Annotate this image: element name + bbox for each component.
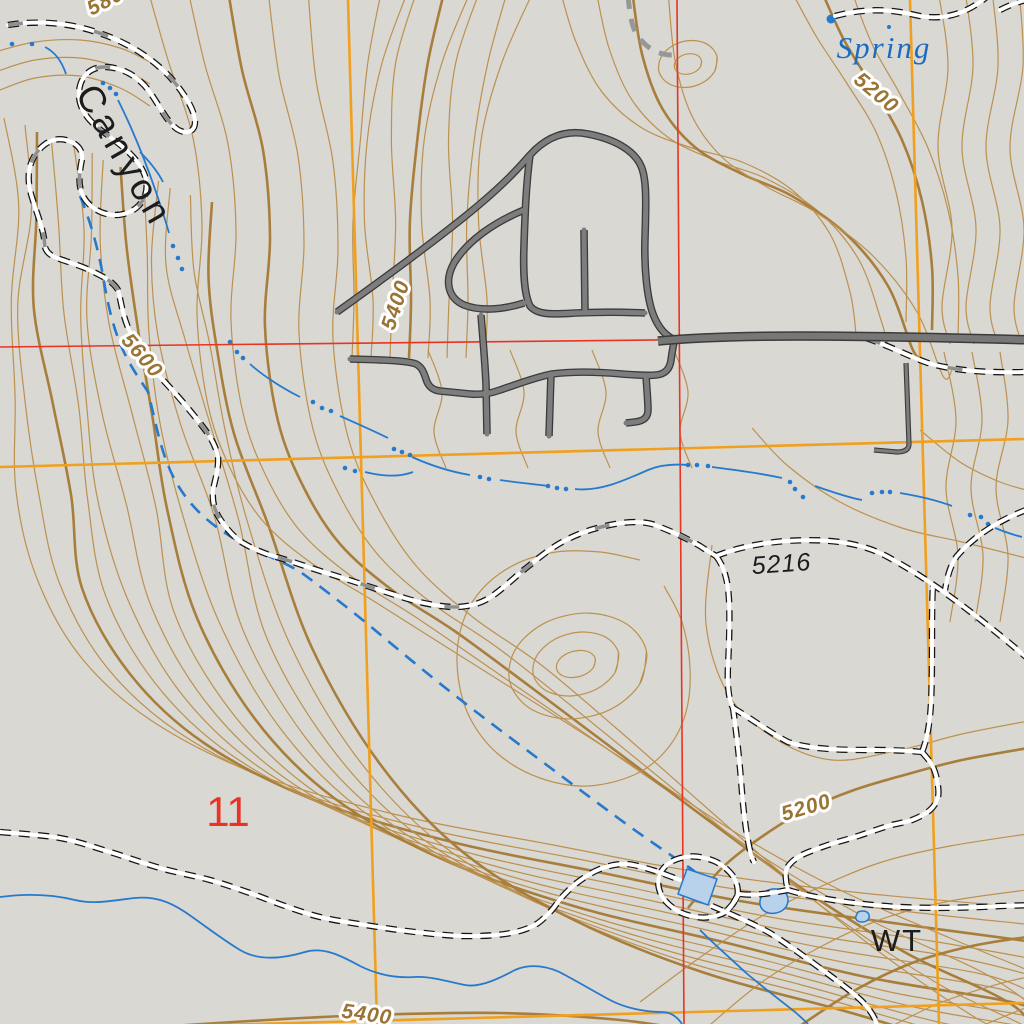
pond-tiny — [856, 911, 869, 922]
stream-dot — [353, 469, 358, 474]
street-stub-2 — [549, 374, 551, 436]
stream-dot — [555, 486, 560, 491]
stream-dot — [968, 513, 973, 518]
stream-dot — [979, 515, 984, 520]
stream-dot — [30, 42, 35, 47]
stream-dot — [793, 487, 798, 492]
stream-dot — [546, 484, 551, 489]
stream-dot — [400, 450, 405, 455]
stream-dot — [686, 463, 691, 468]
stream-dot — [706, 464, 711, 469]
stream-dot — [311, 400, 316, 405]
topographic-map-canvas[interactable]: 5800 Canyon Spring 5200 5400 5600 5216 1… — [0, 0, 1024, 1024]
stream-dot — [880, 490, 885, 495]
stream-dot — [695, 463, 700, 468]
stream-dot — [176, 256, 181, 261]
stream-dot — [870, 491, 875, 496]
stream-dot — [180, 267, 185, 272]
stream-dot — [320, 406, 325, 411]
spring-label: Spring — [837, 30, 932, 65]
stream-dot — [171, 244, 176, 249]
stream-dot — [487, 477, 492, 482]
street-inner-vertical — [584, 230, 585, 312]
section-number-11: 11 — [206, 788, 250, 835]
stream-dot — [478, 475, 483, 480]
stream-dot — [228, 340, 233, 345]
stream-dot — [801, 495, 806, 500]
stream-dot — [788, 480, 793, 485]
stream-dot — [343, 466, 348, 471]
stream-dot — [10, 42, 15, 47]
spot-elevation-5216: 5216 — [751, 548, 812, 580]
stream-dot — [235, 350, 240, 355]
stream-dot — [564, 487, 569, 492]
water-tank-label: WT — [871, 923, 923, 958]
stream-dot — [329, 409, 334, 414]
stream-dot — [408, 453, 413, 458]
stream-dot — [392, 447, 397, 452]
stream-dot — [241, 356, 246, 361]
stream-dot — [888, 490, 893, 495]
